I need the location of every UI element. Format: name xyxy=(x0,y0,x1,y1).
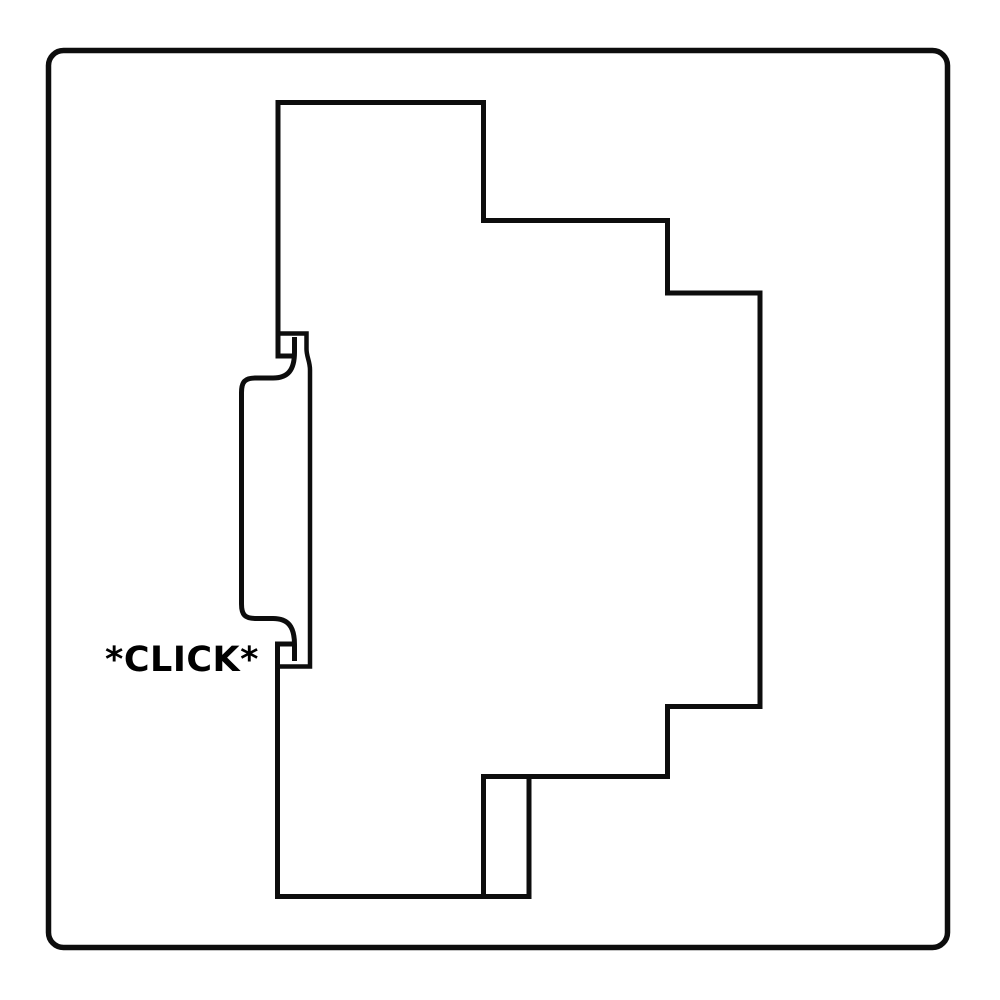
module-outline xyxy=(278,103,761,897)
click-label: *CLICK* xyxy=(105,640,259,680)
din-rail-profile xyxy=(242,337,295,661)
module-foot-tab xyxy=(481,777,529,897)
outer-frame-border xyxy=(49,51,948,948)
illustration-stage: *CLICK* xyxy=(0,0,1000,1000)
module-recess-and-claw-pocket xyxy=(276,334,310,667)
line-art-canvas: *CLICK* xyxy=(0,0,1000,1000)
